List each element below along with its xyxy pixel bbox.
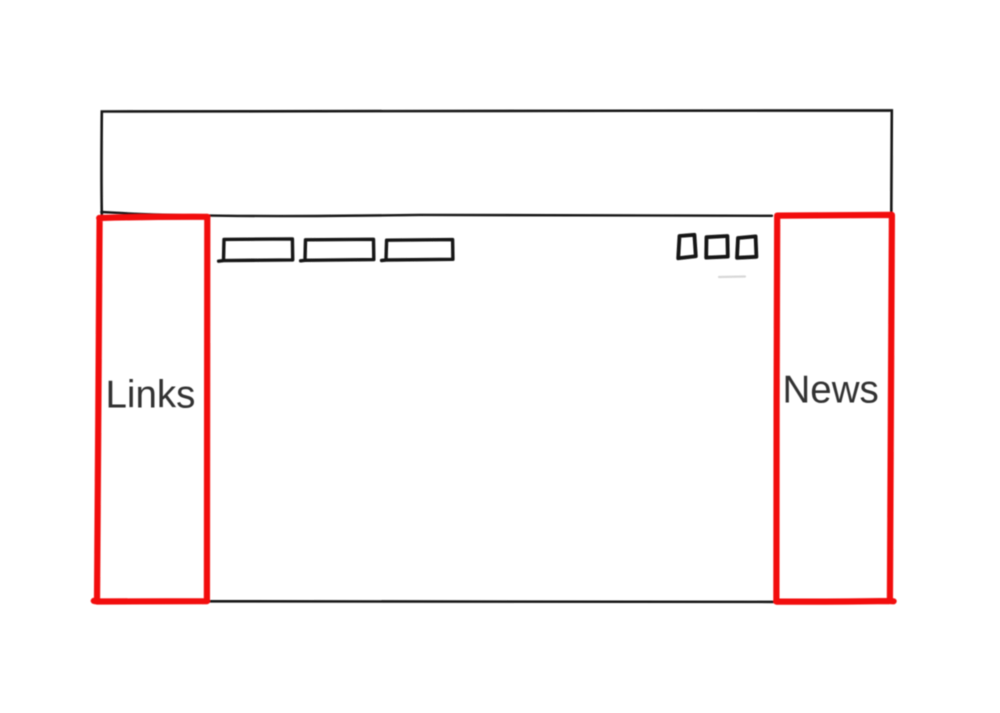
svg-text:Links: Links: [106, 374, 196, 417]
svg-text:News: News: [783, 368, 879, 411]
